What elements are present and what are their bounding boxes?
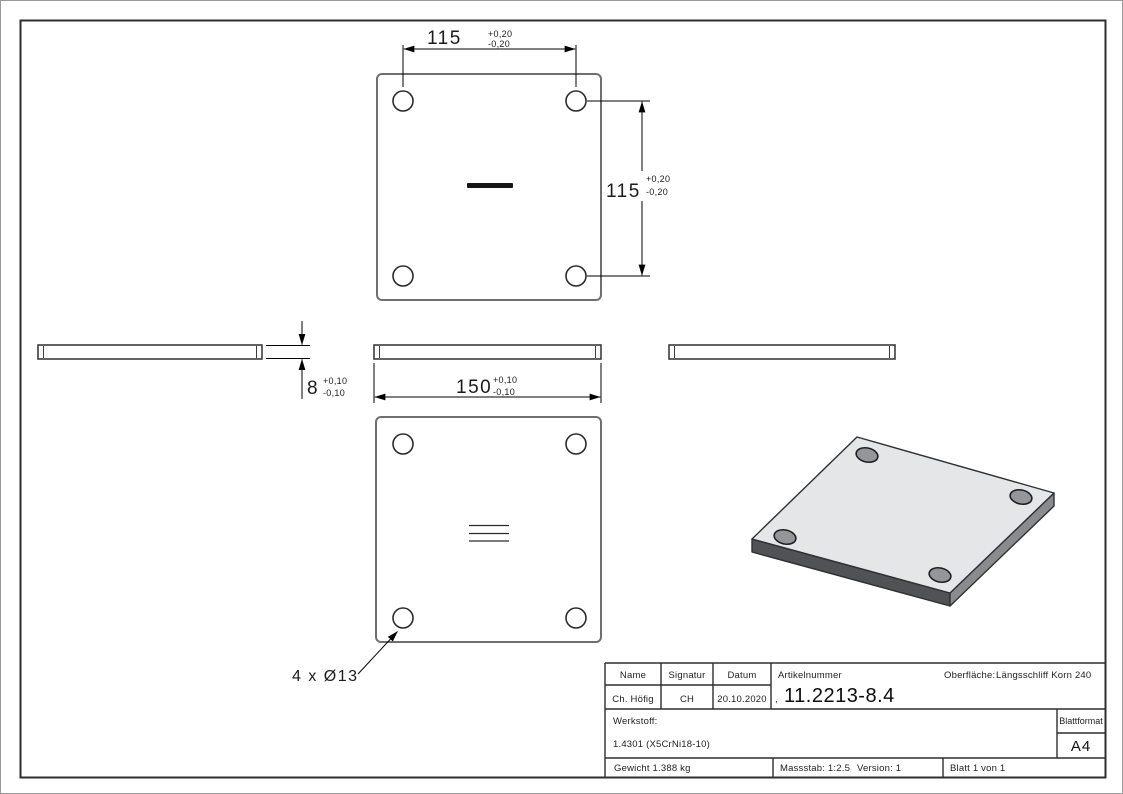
title-block-werkstoff-value: 1.4301 (X5CrNi18-10)	[613, 739, 710, 750]
drawing-sheet: 115 +0,20 -0,20 115 +0,20 -0,20 8 +0,10 …	[0, 0, 1123, 794]
title-block-massstab: Massstab: 1:2.5	[780, 763, 850, 774]
hole-top-left	[393, 91, 413, 111]
title-block-blattformat-value: A4	[1071, 738, 1091, 755]
title-block-werkstoff-label: Werkstoff:	[613, 716, 657, 727]
hole-top-right	[566, 91, 586, 111]
dim-thickness-plus: +0,10	[323, 376, 347, 386]
dim-top-width-minus: -0,20	[488, 39, 510, 49]
title-block-artikelnummer-prefix: ,	[775, 694, 778, 705]
dim-top-width-value: 115	[427, 28, 462, 49]
title-block-signatur-value: CH	[680, 694, 694, 705]
dim-right-height-plus: +0,20	[646, 174, 670, 184]
hole-top-right	[566, 434, 586, 454]
bottom-view	[376, 417, 601, 642]
dim-top-width-plus: +0,20	[488, 29, 512, 39]
title-block-gewicht: Gewicht 1.388 kg	[614, 763, 691, 774]
title-block-artikelnummer-label: Artikelnummer	[778, 670, 842, 681]
title-block-name-value: Ch. Höfig	[612, 694, 653, 705]
dim-right-height-value: 115	[606, 181, 641, 202]
title-block-name-label: Name	[620, 670, 646, 681]
title-block-oberflaeche-label: Oberfläche:	[944, 670, 995, 681]
hole-bottom-right	[566, 266, 586, 286]
side-view-right	[669, 345, 895, 359]
hole-bottom-left	[393, 266, 413, 286]
title-block-datum-label: Datum	[728, 670, 757, 681]
title-block-version: Version: 1	[857, 763, 901, 774]
dim-side-width-value: 150	[456, 377, 492, 398]
dimension-thickness	[266, 321, 310, 399]
dim-right-height-minus: -0,20	[646, 187, 668, 197]
isometric-view	[752, 437, 1054, 606]
hole-top-left	[393, 434, 413, 454]
dim-side-width-plus: +0,10	[493, 375, 517, 385]
title-block-blattformat-label: Blattformat	[1059, 716, 1103, 726]
holes-callout-label: 4 x Ø13	[292, 668, 359, 685]
title-block-artikelnummer-value: 11.2213-8.4	[784, 685, 895, 707]
engraving-mark	[467, 183, 513, 188]
hole-bottom-left	[393, 608, 413, 628]
side-view-middle	[374, 345, 601, 359]
title-block-blatt: Blatt 1 von 1	[950, 763, 1005, 774]
side-view-left	[38, 345, 262, 359]
title-block-signatur-label: Signatur	[669, 670, 706, 681]
plate-top-face	[752, 437, 1054, 593]
top-view	[377, 74, 601, 300]
drawing-canvas: 115 +0,20 -0,20 115 +0,20 -0,20 8 +0,10 …	[1, 1, 1123, 794]
dim-thickness-value: 8	[307, 378, 319, 399]
title-block-oberflaeche-value: Längsschliff Korn 240	[996, 670, 1091, 681]
dim-thickness-minus: -0,10	[323, 388, 345, 398]
dim-side-width-minus: -0,10	[493, 387, 515, 397]
title-block-datum-value: 20.10.2020	[717, 694, 767, 705]
hole-bottom-right	[566, 608, 586, 628]
